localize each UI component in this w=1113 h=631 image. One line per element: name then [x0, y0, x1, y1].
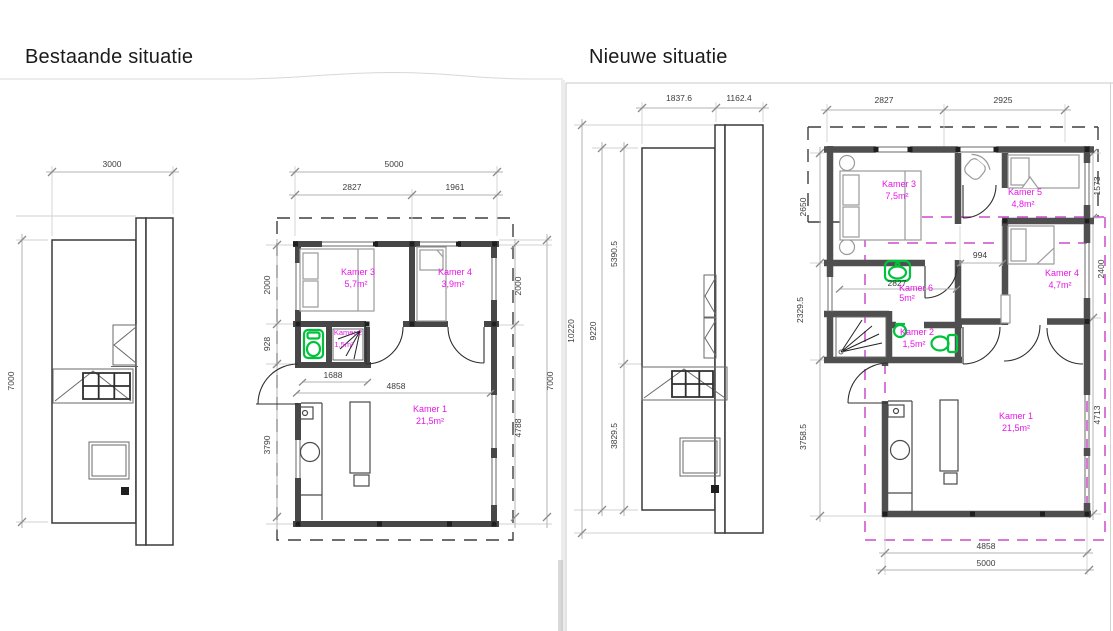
room-label-kamer4: Kamer 4	[1045, 268, 1079, 278]
floorplan-drawing: 3000 7000	[0, 0, 1113, 631]
dim-elev-h2: 9220	[588, 321, 598, 340]
dim-l2: 928	[262, 337, 272, 351]
bed-kamer5-icon	[1008, 155, 1079, 188]
room-label-kamer5: Kamer 5	[1008, 187, 1042, 197]
drawing-canvas: Bestaande situatie Nieuwe situatie 3000 …	[0, 0, 1113, 631]
room-area-kamer4: 3,9m²	[441, 279, 464, 289]
dim-l1: 2650	[798, 197, 808, 216]
elevation-body	[52, 240, 136, 523]
room-label-kamer6: Kamer 6	[899, 283, 933, 293]
kitchen-icons	[888, 400, 958, 514]
room-area-kamer6: 5m²	[899, 293, 915, 303]
room-area-kamer1: 21,5m²	[1002, 423, 1030, 433]
existing-situation: 3000 7000	[6, 159, 555, 545]
new-elevation: 1837.6 1162.4 10220 9220 5390.5 3829.5	[566, 93, 769, 539]
room-label-kamer2: Kamer 2	[334, 328, 362, 337]
dim-elev-h1: 10220	[566, 319, 576, 343]
dim-r1: 1573	[1092, 176, 1102, 195]
new-floorplan: 2827 2925 2650 2329.5 3758.5 1573 2400 4…	[795, 95, 1106, 575]
bed-kamer4-icon	[1008, 226, 1054, 264]
room-label-kamer1: Kamer 1	[413, 404, 447, 414]
bed-kamer3-icon	[840, 156, 922, 255]
dim-elev-height: 7000	[6, 371, 16, 390]
chair-icon	[960, 151, 993, 184]
dim-r-total: 7000	[545, 371, 555, 390]
room-area-kamer3: 7,5m²	[885, 191, 908, 201]
dim-r3: 4713	[1092, 405, 1102, 424]
dim-total-width: 5000	[385, 159, 404, 169]
dim-l2: 2329.5	[795, 297, 805, 323]
dim-elev-w1: 1837.6	[666, 93, 692, 103]
room-area-kamer2: 1,5m²	[902, 339, 925, 349]
dim-i1: 1688	[324, 370, 343, 380]
room-area-kamer4: 4,7m²	[1048, 280, 1071, 290]
dim-r2: 2400	[1096, 259, 1106, 278]
sink-round-icon	[891, 441, 910, 460]
vent-icon	[121, 487, 129, 495]
counter-island-icon	[940, 400, 958, 471]
dim-w1: 2827	[343, 182, 362, 192]
dim-t2: 2925	[994, 95, 1013, 105]
dim-r1: 2000	[513, 276, 523, 295]
room-label-kamer4: Kamer 4	[438, 267, 472, 277]
toilet-icon	[304, 330, 323, 358]
dim-elev-width: 3000	[103, 159, 122, 169]
new-situation: 1837.6 1162.4 10220 9220 5390.5 3829.5	[566, 93, 1106, 575]
dim-elev-h4: 3829.5	[609, 423, 619, 449]
kitchen-icons	[297, 402, 370, 520]
dim-nook: 994	[973, 250, 987, 260]
sink-icon	[301, 443, 320, 462]
room-area-kamer3: 5,7m²	[344, 279, 367, 289]
vent-icon	[711, 485, 719, 493]
dim-w2: 1961	[446, 182, 465, 192]
dim-l3: 3790	[262, 435, 272, 454]
dim-t1: 2827	[875, 95, 894, 105]
room-area-kamer5: 4,8m²	[1011, 199, 1034, 209]
dim-b2: 5000	[977, 558, 996, 568]
dim-b1: 4858	[977, 541, 996, 551]
room-area-kamer2: 1,5m²	[334, 340, 354, 349]
dim-elev-w2: 1162.4	[726, 93, 752, 103]
room-label-kamer3: Kamer 3	[882, 179, 916, 189]
shower-icon	[836, 317, 886, 357]
existing-floorplan: 5000 2827 1961 2000 928 3790 2000 4788 7…	[256, 159, 555, 540]
dim-elev-h3: 5390.5	[609, 241, 619, 267]
room-label-kamer2: Kamer 2	[900, 327, 934, 337]
existing-elevation: 3000 7000	[6, 159, 179, 545]
dim-i2: 4858	[387, 381, 406, 391]
dim-l3: 3758.5	[798, 424, 808, 450]
room-area-kamer1: 21,5m²	[416, 416, 444, 426]
toilet-icon	[932, 335, 958, 352]
room-label-kamer3: Kamer 3	[341, 267, 375, 277]
room-label-kamer1: Kamer 1	[999, 411, 1033, 421]
counter-island-icon	[350, 402, 370, 473]
dim-l1: 2000	[262, 275, 272, 294]
dim-r2: 4788	[513, 418, 523, 437]
